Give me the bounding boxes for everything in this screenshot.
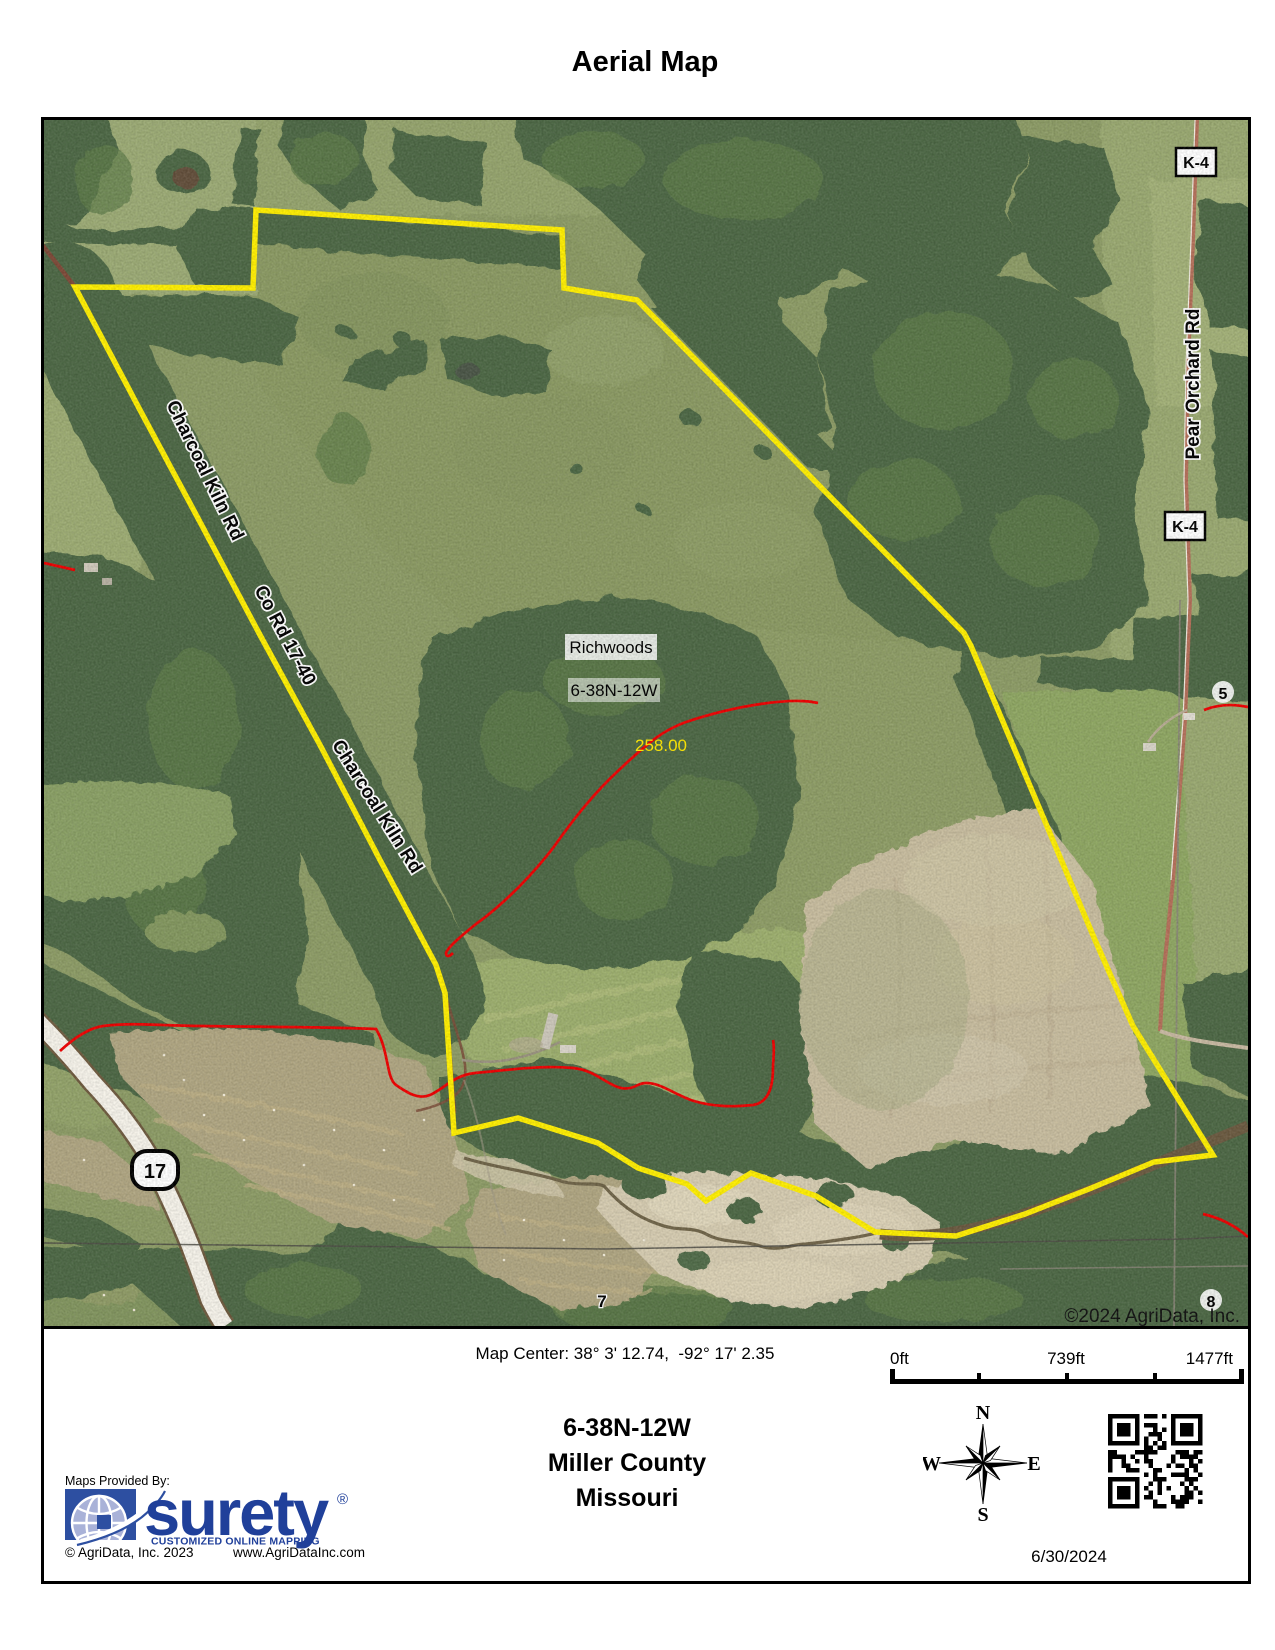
svg-text:W: W xyxy=(923,1453,941,1475)
svg-text:E: E xyxy=(1027,1453,1040,1475)
svg-text:N: N xyxy=(976,1403,991,1424)
svg-text:®: ® xyxy=(337,1491,348,1508)
svg-text:S: S xyxy=(977,1504,988,1523)
